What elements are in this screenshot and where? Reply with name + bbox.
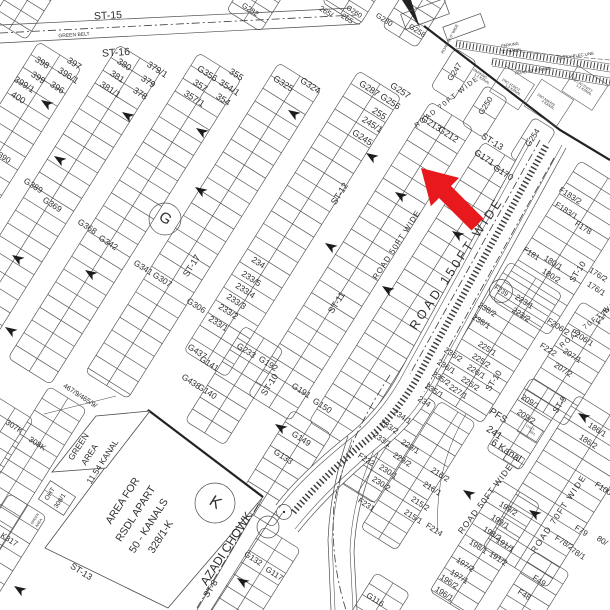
plot-label: 229/1 xyxy=(399,437,421,456)
street-label: ST-10 xyxy=(567,259,588,284)
area-label: 467/9/465/9/ xyxy=(62,383,99,410)
plot-label: F181 xyxy=(521,245,542,263)
top-band-label: 265/ xyxy=(318,4,336,20)
street-label: ST-9 xyxy=(550,394,568,415)
direction-arrow-icon xyxy=(450,227,465,241)
plot-label: 207/2 xyxy=(552,360,574,379)
roundabout-dot xyxy=(283,511,285,513)
plot-label: 396 xyxy=(48,79,66,96)
plot-label: G170 xyxy=(491,162,515,182)
plot-map-screenshot: GKF239 ST-15GREEN BELTST-16G282265/265G2… xyxy=(0,0,610,610)
direction-arrow-icon xyxy=(3,323,18,337)
top-band-label: ST-16 xyxy=(102,46,131,60)
plot-label: 216/1 xyxy=(421,479,443,498)
street-label: ST-13 xyxy=(480,131,506,152)
direction-arrow-icon xyxy=(323,239,338,253)
plot-label: G389 xyxy=(22,176,45,196)
plot-label: F100 xyxy=(593,480,610,498)
plot-label: 400 xyxy=(9,89,27,106)
street-label: ST-11 xyxy=(326,290,347,315)
area-label: 69/1 xyxy=(528,429,536,436)
plot-label: G325 xyxy=(271,73,295,93)
plot-label: 398 xyxy=(33,54,51,71)
red-arrow-marker xyxy=(421,168,484,231)
plot-label: F48 xyxy=(516,587,533,602)
roundabout-circle xyxy=(257,516,279,538)
direction-arrow-icon xyxy=(12,582,27,596)
direction-arrow-icon xyxy=(576,409,591,423)
plot-label: 78/1 xyxy=(569,546,587,562)
plot-lane xyxy=(0,0,57,40)
direction-arrow-icon xyxy=(194,124,209,138)
plot-label: 80/ xyxy=(595,534,610,548)
plot-label: G192 xyxy=(257,354,280,374)
top-band-label: ST-15 xyxy=(94,9,123,22)
plot-label: 379 xyxy=(139,73,157,90)
plot-label: 307K xyxy=(4,418,25,436)
plot-label: G247 xyxy=(446,61,465,83)
direction-arrow-icon xyxy=(364,149,379,163)
plot-label: 308K xyxy=(27,435,48,453)
plot-label: G287 xyxy=(357,78,381,98)
direction-arrow-icon xyxy=(380,282,395,296)
plot-label: G324 xyxy=(298,75,322,95)
direction-arrow-icon xyxy=(39,96,54,110)
plot-label: G368 xyxy=(76,217,99,237)
plot-label: 355 xyxy=(227,66,245,83)
direction-arrow-icon xyxy=(461,486,476,500)
plot-label: 186/2 xyxy=(577,432,599,451)
road-150ft xyxy=(276,138,566,532)
street-label: ST-12 xyxy=(329,181,350,207)
plot-label: G149 xyxy=(290,429,313,449)
plot-label: G307 xyxy=(151,270,174,290)
plot-label: G306 xyxy=(185,296,208,316)
direction-arrow-icon xyxy=(273,420,288,434)
green-belt-band xyxy=(0,8,360,43)
plot-label: F79 xyxy=(573,523,590,538)
plot-label: G250 xyxy=(477,95,496,117)
plot-label: G116 xyxy=(365,591,386,609)
plot-label: F175 xyxy=(594,305,610,326)
plot-label: 390 xyxy=(0,150,13,165)
direction-arrow-icon xyxy=(527,506,542,520)
plot-label: 207/1 xyxy=(561,346,583,365)
area-label: 308/1 xyxy=(53,492,68,510)
road-label: ROAD 50FT WIDE xyxy=(371,208,423,281)
direction-arrow-icon xyxy=(83,266,98,280)
plot-label: G341 xyxy=(132,258,155,278)
plot-label: 216/2 xyxy=(429,465,451,484)
plot-label: G245 xyxy=(350,127,374,147)
plot-label: F178 xyxy=(573,219,594,237)
plot-label: G171 xyxy=(472,147,496,167)
plot-label: 229/2 xyxy=(391,450,413,469)
plot-label: G191 xyxy=(290,381,313,401)
cadastral-plot-map: GKF239 ST-15GREEN BELTST-16G282265/265G2… xyxy=(0,0,610,610)
plot-label: 233/1 xyxy=(207,313,231,333)
direction-arrow-icon xyxy=(120,108,135,122)
direction-arrow-icon xyxy=(286,106,301,120)
direction-arrow-icon xyxy=(193,183,208,197)
plot-label: G141 xyxy=(198,354,221,374)
plot-label: F214 xyxy=(424,521,445,539)
street-label: ST-17 xyxy=(181,253,202,279)
direction-arrow-icon xyxy=(235,574,250,588)
plot-label: G212 xyxy=(436,124,460,144)
parking-cluster-label: 132 KV ELEC LINE xyxy=(558,51,595,61)
plot-label: 381 xyxy=(108,68,126,85)
plot-label: G133 xyxy=(272,447,295,467)
plot-label: 354 xyxy=(214,91,232,108)
plot-label: 378 xyxy=(131,85,149,102)
annotation-layer xyxy=(421,168,484,231)
direction-arrow-icon xyxy=(52,152,67,166)
